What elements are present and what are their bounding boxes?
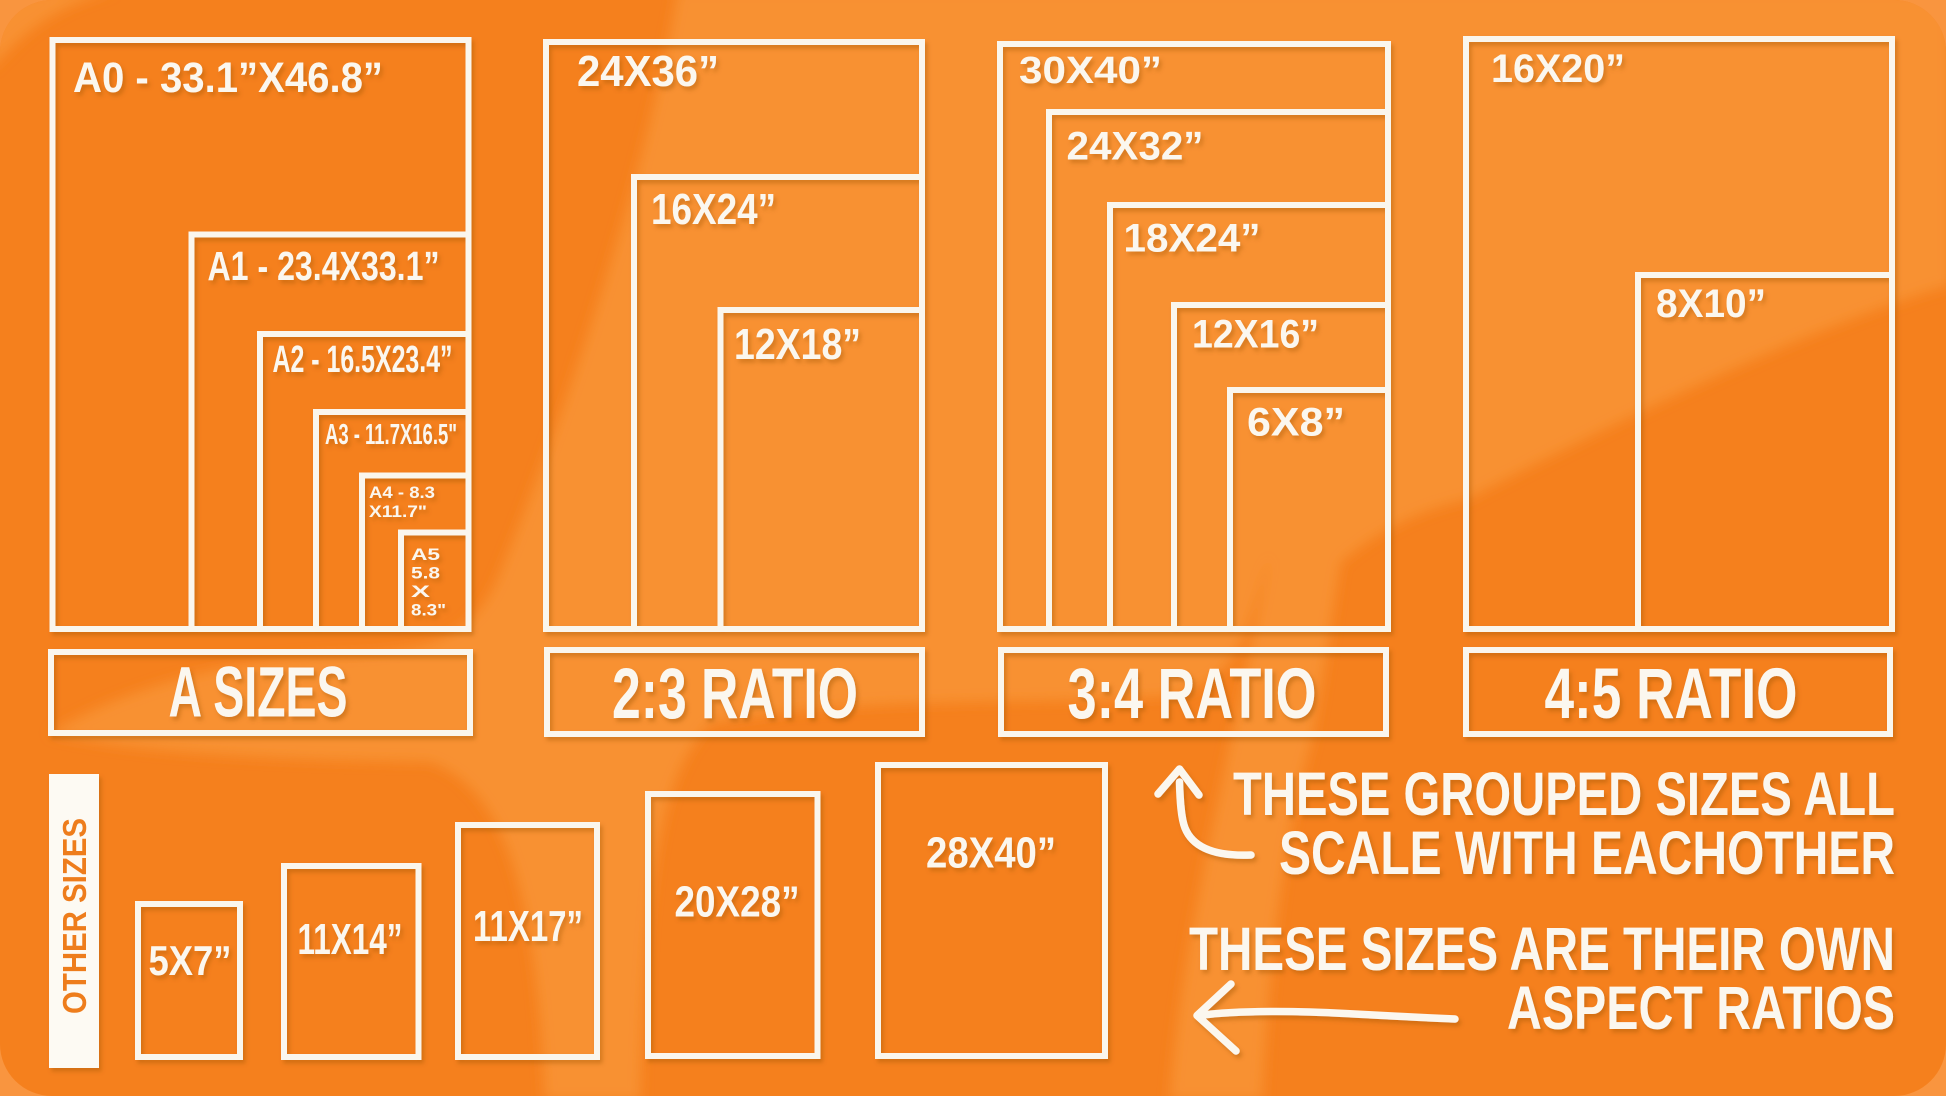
svg-text:11X17”: 11X17” xyxy=(473,902,583,951)
svg-text:11X14”: 11X14” xyxy=(298,915,403,964)
svg-text:X11.7": X11.7" xyxy=(369,502,427,521)
svg-text:8X10”: 8X10” xyxy=(1656,282,1766,326)
svg-text:6X8”: 6X8” xyxy=(1247,401,1345,445)
svg-text:A0 - 33.1”X46.8”: A0 - 33.1”X46.8” xyxy=(73,54,383,102)
svg-text:24X36”: 24X36” xyxy=(577,47,719,96)
svg-text:28X40”: 28X40” xyxy=(926,829,1056,878)
svg-text:12X16”: 12X16” xyxy=(1192,313,1319,357)
svg-text:A4 - 8.3: A4 - 8.3 xyxy=(369,483,435,502)
svg-text:30X40”: 30X40” xyxy=(1019,50,1162,92)
svg-text:3:4 RATIO: 3:4 RATIO xyxy=(1068,655,1317,734)
svg-text:24X32”: 24X32” xyxy=(1067,125,1204,169)
svg-text:A5: A5 xyxy=(411,545,440,564)
svg-text:A3 - 11.7X16.5": A3 - 11.7X16.5" xyxy=(325,419,457,451)
svg-text:A SIZES: A SIZES xyxy=(169,654,348,733)
svg-text:THESE GROUPED SIZES ALL: THESE GROUPED SIZES ALL xyxy=(1233,760,1895,828)
svg-text:A2 - 16.5X23.4”: A2 - 16.5X23.4” xyxy=(273,339,453,381)
svg-text:5X7”: 5X7” xyxy=(149,937,232,984)
svg-text:12X18”: 12X18” xyxy=(734,320,861,369)
svg-text:SCALE WITH EACHOTHER: SCALE WITH EACHOTHER xyxy=(1279,819,1895,887)
svg-text:OTHER SIZES: OTHER SIZES xyxy=(56,818,93,1014)
svg-text:5.8: 5.8 xyxy=(411,564,440,583)
svg-text:18X24”: 18X24” xyxy=(1124,217,1261,261)
svg-text:20X28”: 20X28” xyxy=(675,878,800,927)
svg-text:THESE SIZES ARE THEIR OWN: THESE SIZES ARE THEIR OWN xyxy=(1189,915,1895,983)
svg-text:4:5 RATIO: 4:5 RATIO xyxy=(1545,655,1798,734)
svg-text:16X20”: 16X20” xyxy=(1491,47,1625,91)
svg-text:A1 - 23.4X33.1”: A1 - 23.4X33.1” xyxy=(208,243,440,289)
svg-text:X: X xyxy=(411,582,431,601)
svg-text:2:3 RATIO: 2:3 RATIO xyxy=(612,655,858,734)
svg-text:8.3": 8.3" xyxy=(411,601,446,620)
svg-text:16X24”: 16X24” xyxy=(651,185,776,234)
svg-text:ASPECT RATIOS: ASPECT RATIOS xyxy=(1507,974,1895,1042)
